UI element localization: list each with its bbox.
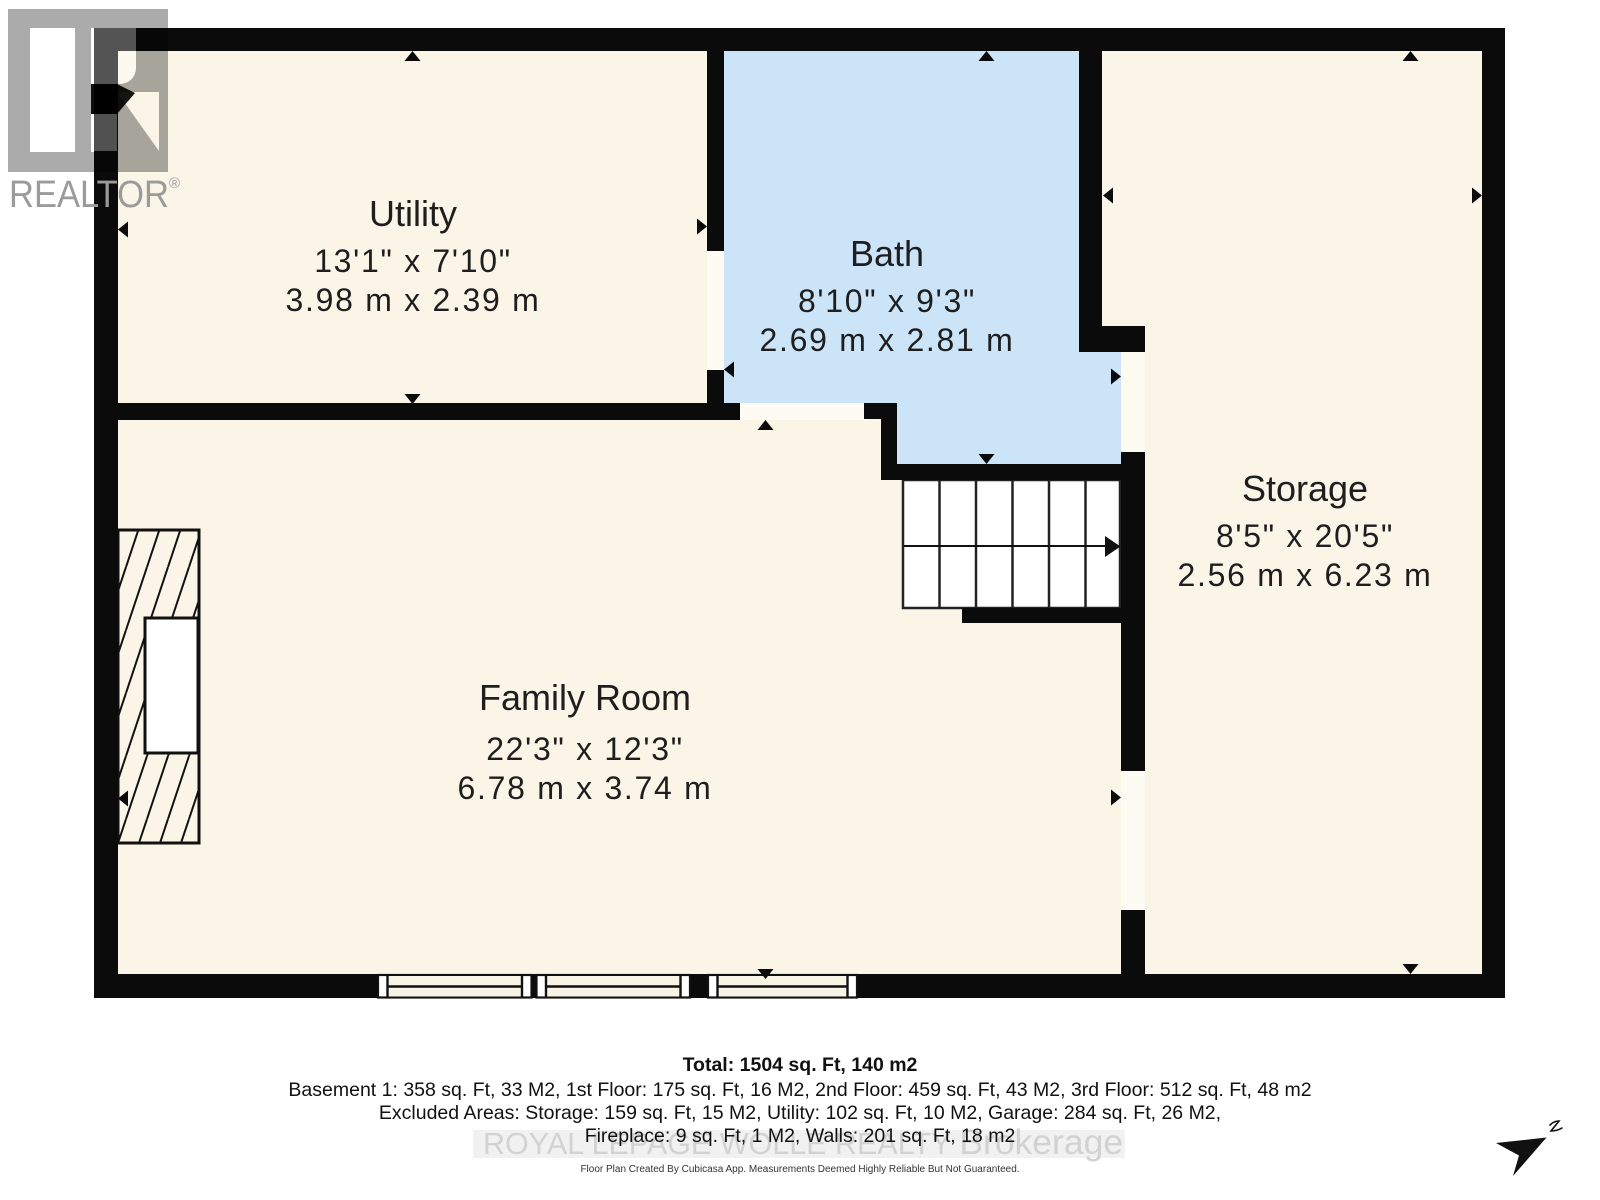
svg-text:8'5" x 20'5": 8'5" x 20'5" <box>1216 518 1394 554</box>
svg-text:Utility: Utility <box>369 193 457 234</box>
svg-text:Basement 1: 358 sq. Ft, 33 M2,: Basement 1: 358 sq. Ft, 33 M2, 1st Floor… <box>288 1079 1311 1101</box>
svg-text:Excluded Areas: Storage: 159 s: Excluded Areas: Storage: 159 sq. Ft, 15 … <box>379 1102 1221 1124</box>
svg-text:2.56 m x 6.23 m: 2.56 m x 6.23 m <box>1178 557 1433 593</box>
svg-text:22'3" x 12'3": 22'3" x 12'3" <box>486 731 684 767</box>
svg-text:Storage: Storage <box>1242 468 1368 509</box>
svg-text:13'1" x 7'10": 13'1" x 7'10" <box>314 243 512 279</box>
svg-text:Total: 1504 sq. Ft, 140 m2: Total: 1504 sq. Ft, 140 m2 <box>683 1054 918 1076</box>
svg-text:6.78 m x 3.74 m: 6.78 m x 3.74 m <box>458 770 713 806</box>
svg-text:®: ® <box>169 175 180 192</box>
svg-text:3.98 m x 2.39 m: 3.98 m x 2.39 m <box>286 282 541 318</box>
svg-text:Floor Plan Created By Cubicasa: Floor Plan Created By Cubicasa App. Meas… <box>580 1164 1019 1175</box>
svg-text:2.69 m x 2.81 m: 2.69 m x 2.81 m <box>760 322 1015 358</box>
svg-text:Bath: Bath <box>850 233 924 274</box>
svg-text:8'10" x 9'3": 8'10" x 9'3" <box>798 283 976 319</box>
svg-text:Family Room: Family Room <box>479 677 691 718</box>
svg-text:Fireplace: 9 sq. Ft, 1 M2, Wal: Fireplace: 9 sq. Ft, 1 M2, Walls: 201 sq… <box>585 1125 1016 1147</box>
svg-text:REALTOR: REALTOR <box>9 174 169 216</box>
